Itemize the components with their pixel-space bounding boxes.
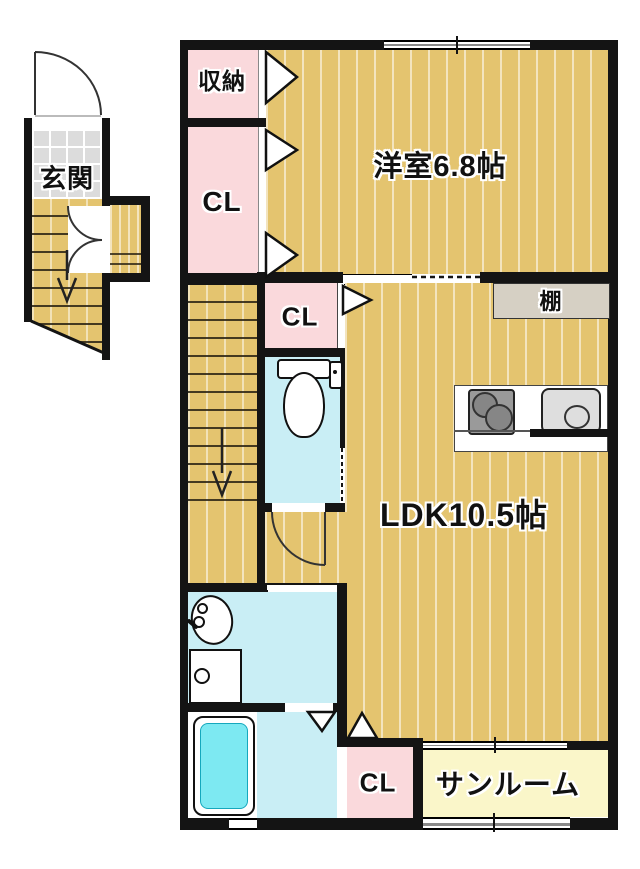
closet-lower-label: CL <box>360 768 397 799</box>
wall <box>180 818 229 830</box>
bathroom-floor <box>257 712 337 818</box>
toilet-control-panel <box>329 361 343 389</box>
wall <box>102 118 110 130</box>
corridor-floor <box>265 512 348 583</box>
western-room-label: 洋室6.8帖 <box>373 143 506 185</box>
sunroom-top-window <box>423 741 567 750</box>
closet-middle-label: CL <box>282 302 319 333</box>
kitchen-sink-drain <box>564 405 590 429</box>
ldk-label: LDK10.5帖 <box>380 490 548 536</box>
stove-burner <box>485 404 513 432</box>
wall <box>257 348 348 357</box>
bathtub-inner <box>200 723 248 809</box>
wall <box>180 273 267 285</box>
stair-landing-winders <box>110 245 141 273</box>
entrance-inner-door-leaf <box>68 206 102 273</box>
toilet-panel-dot <box>333 370 337 374</box>
sunroom-label: サンルーム <box>436 763 580 803</box>
wall <box>257 283 265 583</box>
washbasin-faucet <box>197 603 208 614</box>
wall <box>24 118 32 322</box>
wall <box>257 503 272 512</box>
staircase-floor <box>188 285 257 505</box>
wall <box>570 818 618 830</box>
bedroom-window <box>384 40 530 50</box>
washing-machine-drain <box>194 668 210 684</box>
storage-label: 収納 <box>198 62 246 96</box>
wall <box>257 272 343 283</box>
floor-plan: 玄関 収納 CL 洋室6.8帖 CL 棚 LDK10.5帖 CL サンルーム <box>0 0 640 869</box>
wall <box>180 703 285 712</box>
wall <box>337 583 347 747</box>
wall <box>180 118 266 127</box>
wall <box>337 738 423 747</box>
entrance-door-arc <box>35 52 101 115</box>
wall <box>530 429 608 437</box>
wall <box>102 196 150 205</box>
toilet-bowl <box>283 372 325 438</box>
wall <box>102 273 110 360</box>
closet-middle-door-track <box>337 283 344 348</box>
wall <box>530 40 618 50</box>
genkan-label: 玄関 <box>40 159 94 196</box>
wall <box>480 272 608 283</box>
wall <box>102 130 110 206</box>
wall <box>141 205 150 282</box>
wall <box>180 40 384 50</box>
wall <box>567 741 608 750</box>
wall <box>608 40 618 830</box>
closet-upper-label: CL <box>202 186 241 218</box>
wall <box>180 583 267 592</box>
sunroom-bottom-window <box>423 817 570 830</box>
wall <box>413 738 423 830</box>
wall <box>257 818 423 830</box>
bathroom-window <box>229 818 257 830</box>
washroom-opening-line <box>267 583 345 585</box>
wall <box>24 118 32 130</box>
shelf-label: 棚 <box>539 284 562 316</box>
hall-floor <box>188 505 257 583</box>
